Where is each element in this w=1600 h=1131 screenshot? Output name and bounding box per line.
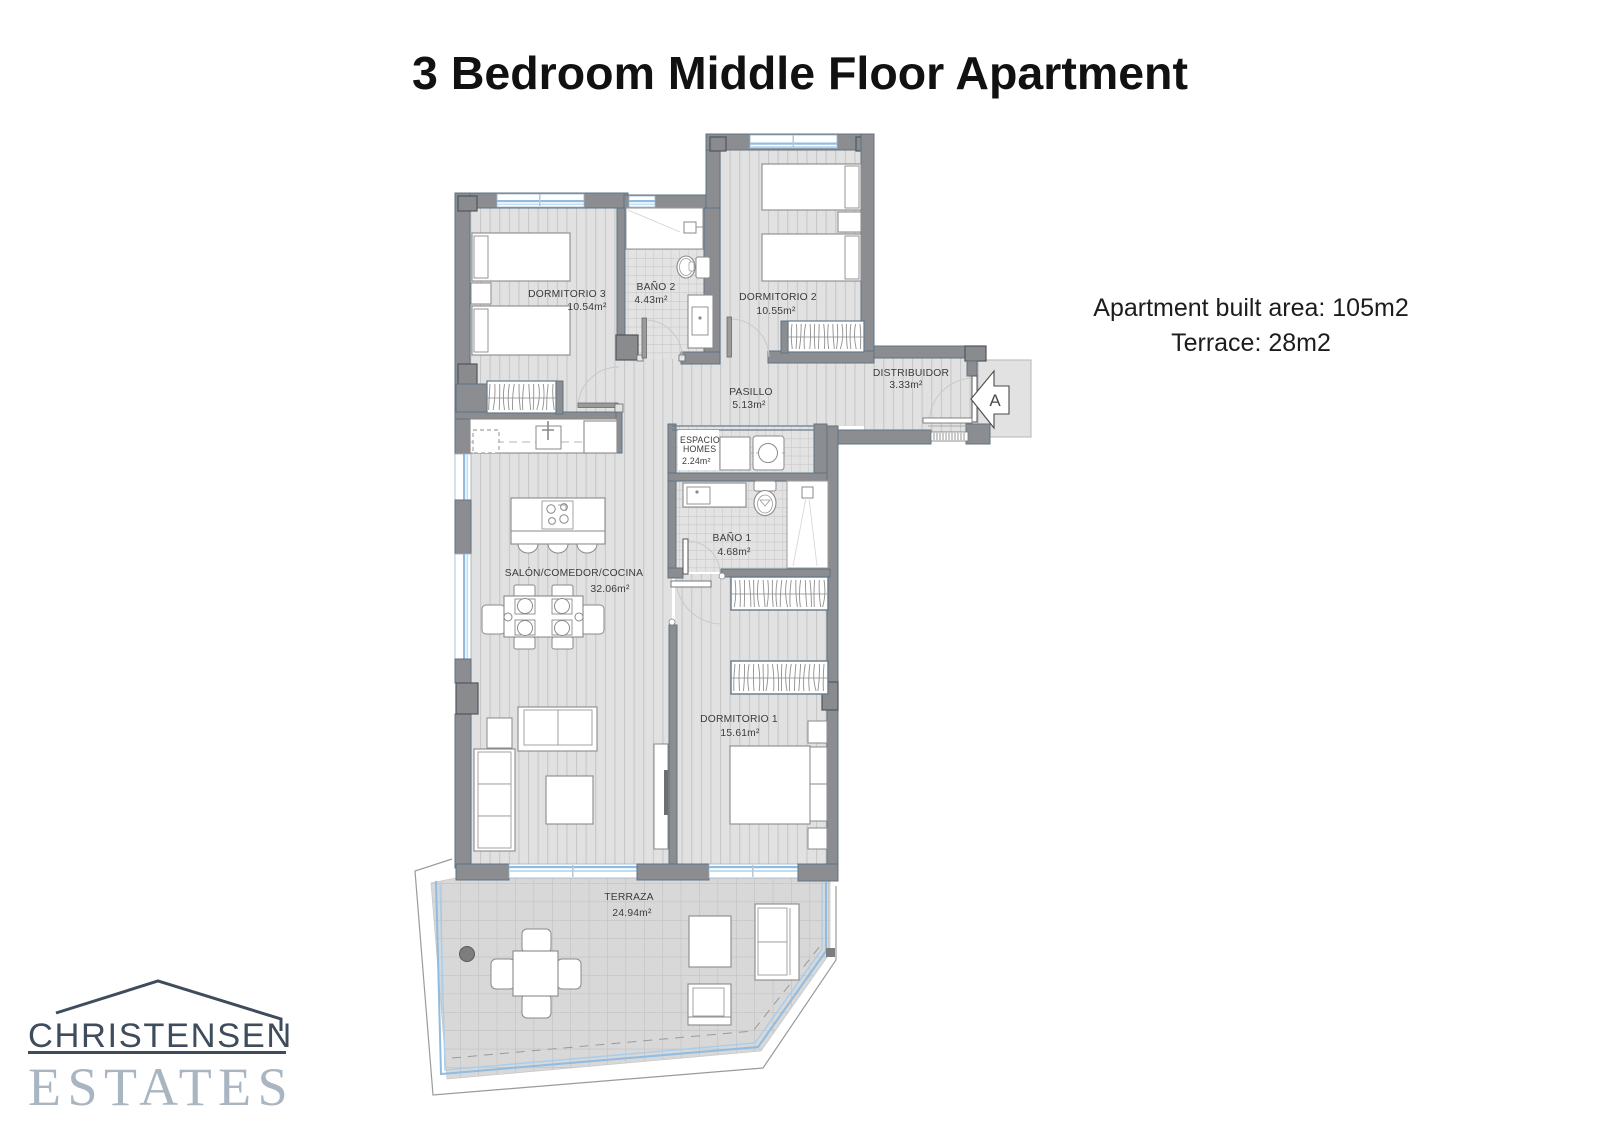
svg-text:HOMES: HOMES (683, 444, 716, 454)
svg-text:15.61m²: 15.61m² (720, 728, 760, 739)
svg-text:2.24m²: 2.24m² (682, 456, 711, 466)
svg-text:3.33m²: 3.33m² (889, 380, 923, 391)
svg-text:A: A (989, 391, 1001, 410)
svg-text:TERRAZA: TERRAZA (604, 892, 653, 903)
svg-text:5.13m²: 5.13m² (732, 400, 766, 411)
svg-text:BAÑO 2: BAÑO 2 (637, 280, 676, 293)
svg-text:DORMITORIO 1: DORMITORIO 1 (700, 714, 778, 725)
svg-text:10.54m²: 10.54m² (567, 302, 607, 313)
svg-text:BAÑO 1: BAÑO 1 (713, 531, 752, 544)
svg-text:DORMITORIO 2: DORMITORIO 2 (739, 292, 817, 303)
svg-text:PASILLO: PASILLO (729, 387, 773, 398)
svg-text:4.43m²: 4.43m² (634, 295, 668, 306)
svg-text:SALÓN/COMEDOR/COCINA: SALÓN/COMEDOR/COCINA (505, 566, 643, 579)
svg-text:24.94m²: 24.94m² (612, 908, 652, 919)
svg-text:DORMITORIO 3: DORMITORIO 3 (528, 289, 606, 300)
svg-text:DISTRIBUIDOR: DISTRIBUIDOR (873, 368, 949, 379)
svg-text:4.68m²: 4.68m² (717, 547, 751, 558)
svg-text:10.55m²: 10.55m² (756, 306, 796, 317)
svg-text:32.06m²: 32.06m² (590, 584, 630, 595)
